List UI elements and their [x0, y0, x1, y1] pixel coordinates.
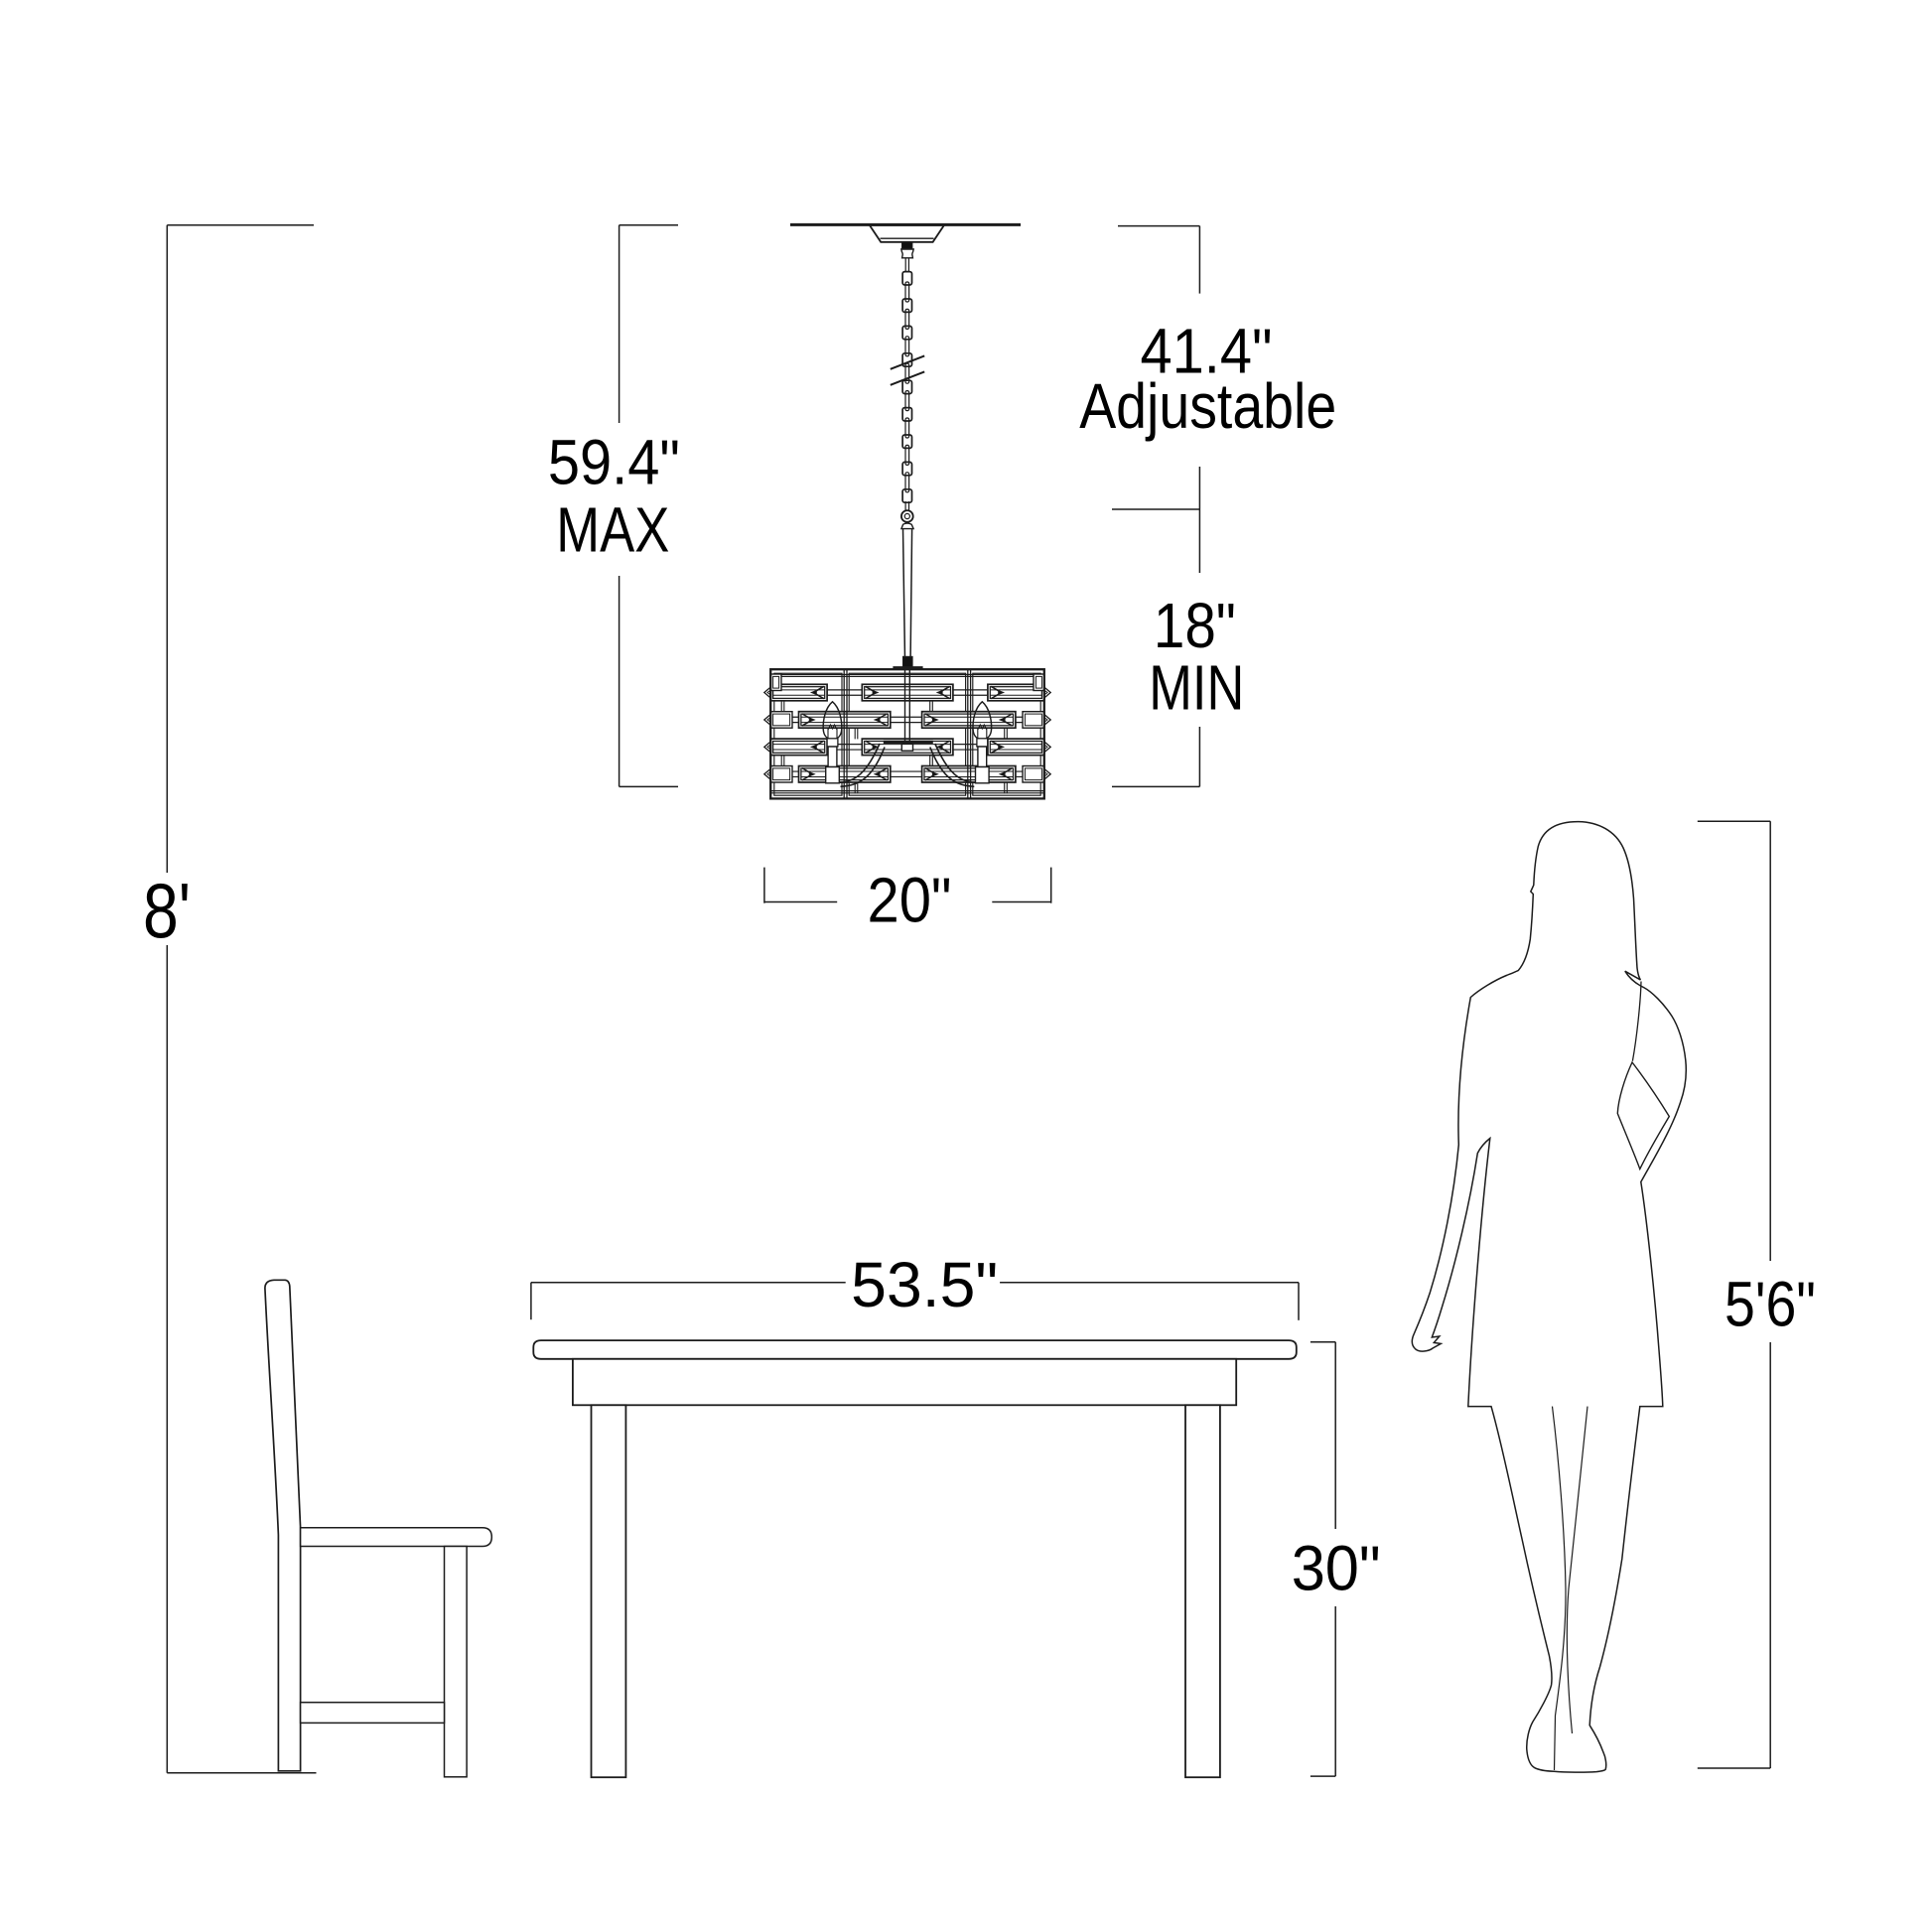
svg-text:59.4": 59.4" [548, 426, 680, 497]
svg-text:18": 18" [1154, 590, 1236, 661]
svg-text:53.5": 53.5" [851, 1249, 998, 1320]
svg-text:MAX: MAX [556, 494, 669, 566]
svg-text:20": 20" [868, 864, 952, 935]
svg-text:Adjustable: Adjustable [1079, 370, 1336, 442]
svg-text:30": 30" [1292, 1533, 1381, 1604]
svg-text:5'6": 5'6" [1725, 1268, 1816, 1339]
svg-text:MIN: MIN [1149, 652, 1244, 724]
svg-text:8': 8' [143, 867, 191, 954]
